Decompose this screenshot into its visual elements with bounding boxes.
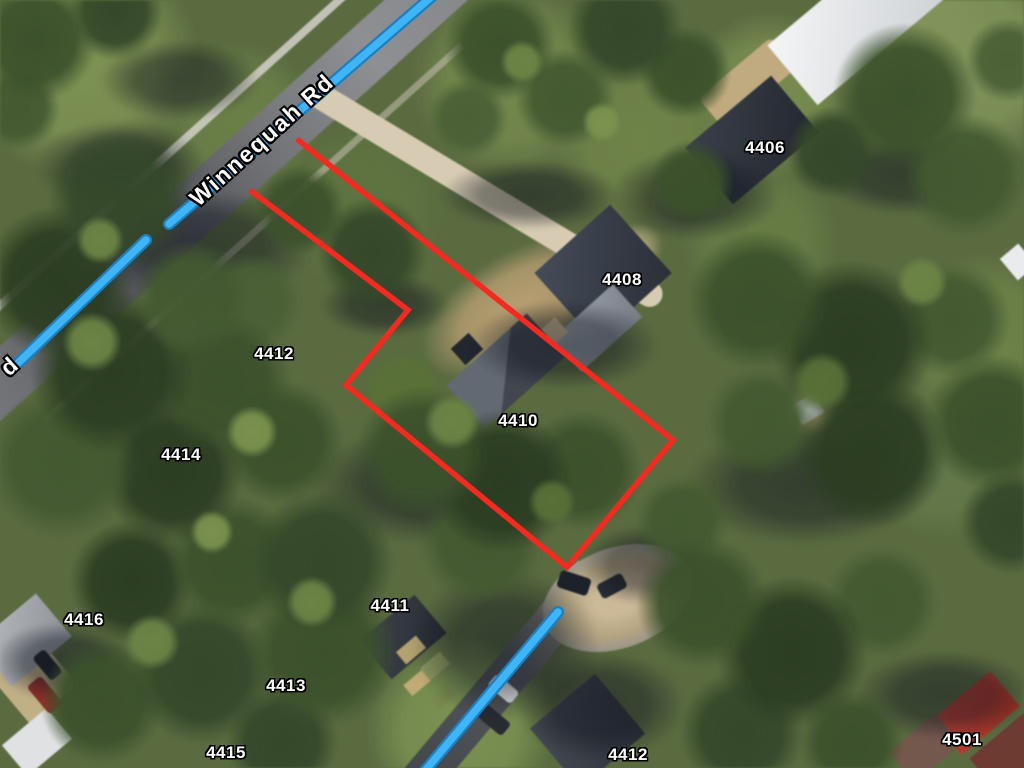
address-label-4412-lower[interactable]: 4412 xyxy=(608,745,648,765)
address-label-4415[interactable]: 4415 xyxy=(206,743,246,763)
road-label-partial: d xyxy=(0,351,25,382)
address-label-4501[interactable]: 4501 xyxy=(942,730,982,750)
address-label-4414[interactable]: 4414 xyxy=(161,445,201,465)
address-label-4412-upper[interactable]: 4412 xyxy=(254,344,294,364)
satellite-map-canvas[interactable]: Winnequah Rd d 4406 4408 4412 4410 4414 … xyxy=(0,0,1024,768)
road-label-winnequah: Winnequah Rd xyxy=(184,68,339,212)
address-label-4413[interactable]: 4413 xyxy=(266,676,306,696)
address-label-4411[interactable]: 4411 xyxy=(371,596,410,616)
address-label-4410[interactable]: 4410 xyxy=(498,411,538,431)
label-layer: Winnequah Rd d 4406 4408 4412 4410 4414 … xyxy=(0,0,1024,768)
address-label-4416[interactable]: 4416 xyxy=(64,610,104,630)
address-label-4408[interactable]: 4408 xyxy=(602,270,642,290)
address-label-4406[interactable]: 4406 xyxy=(745,138,785,158)
